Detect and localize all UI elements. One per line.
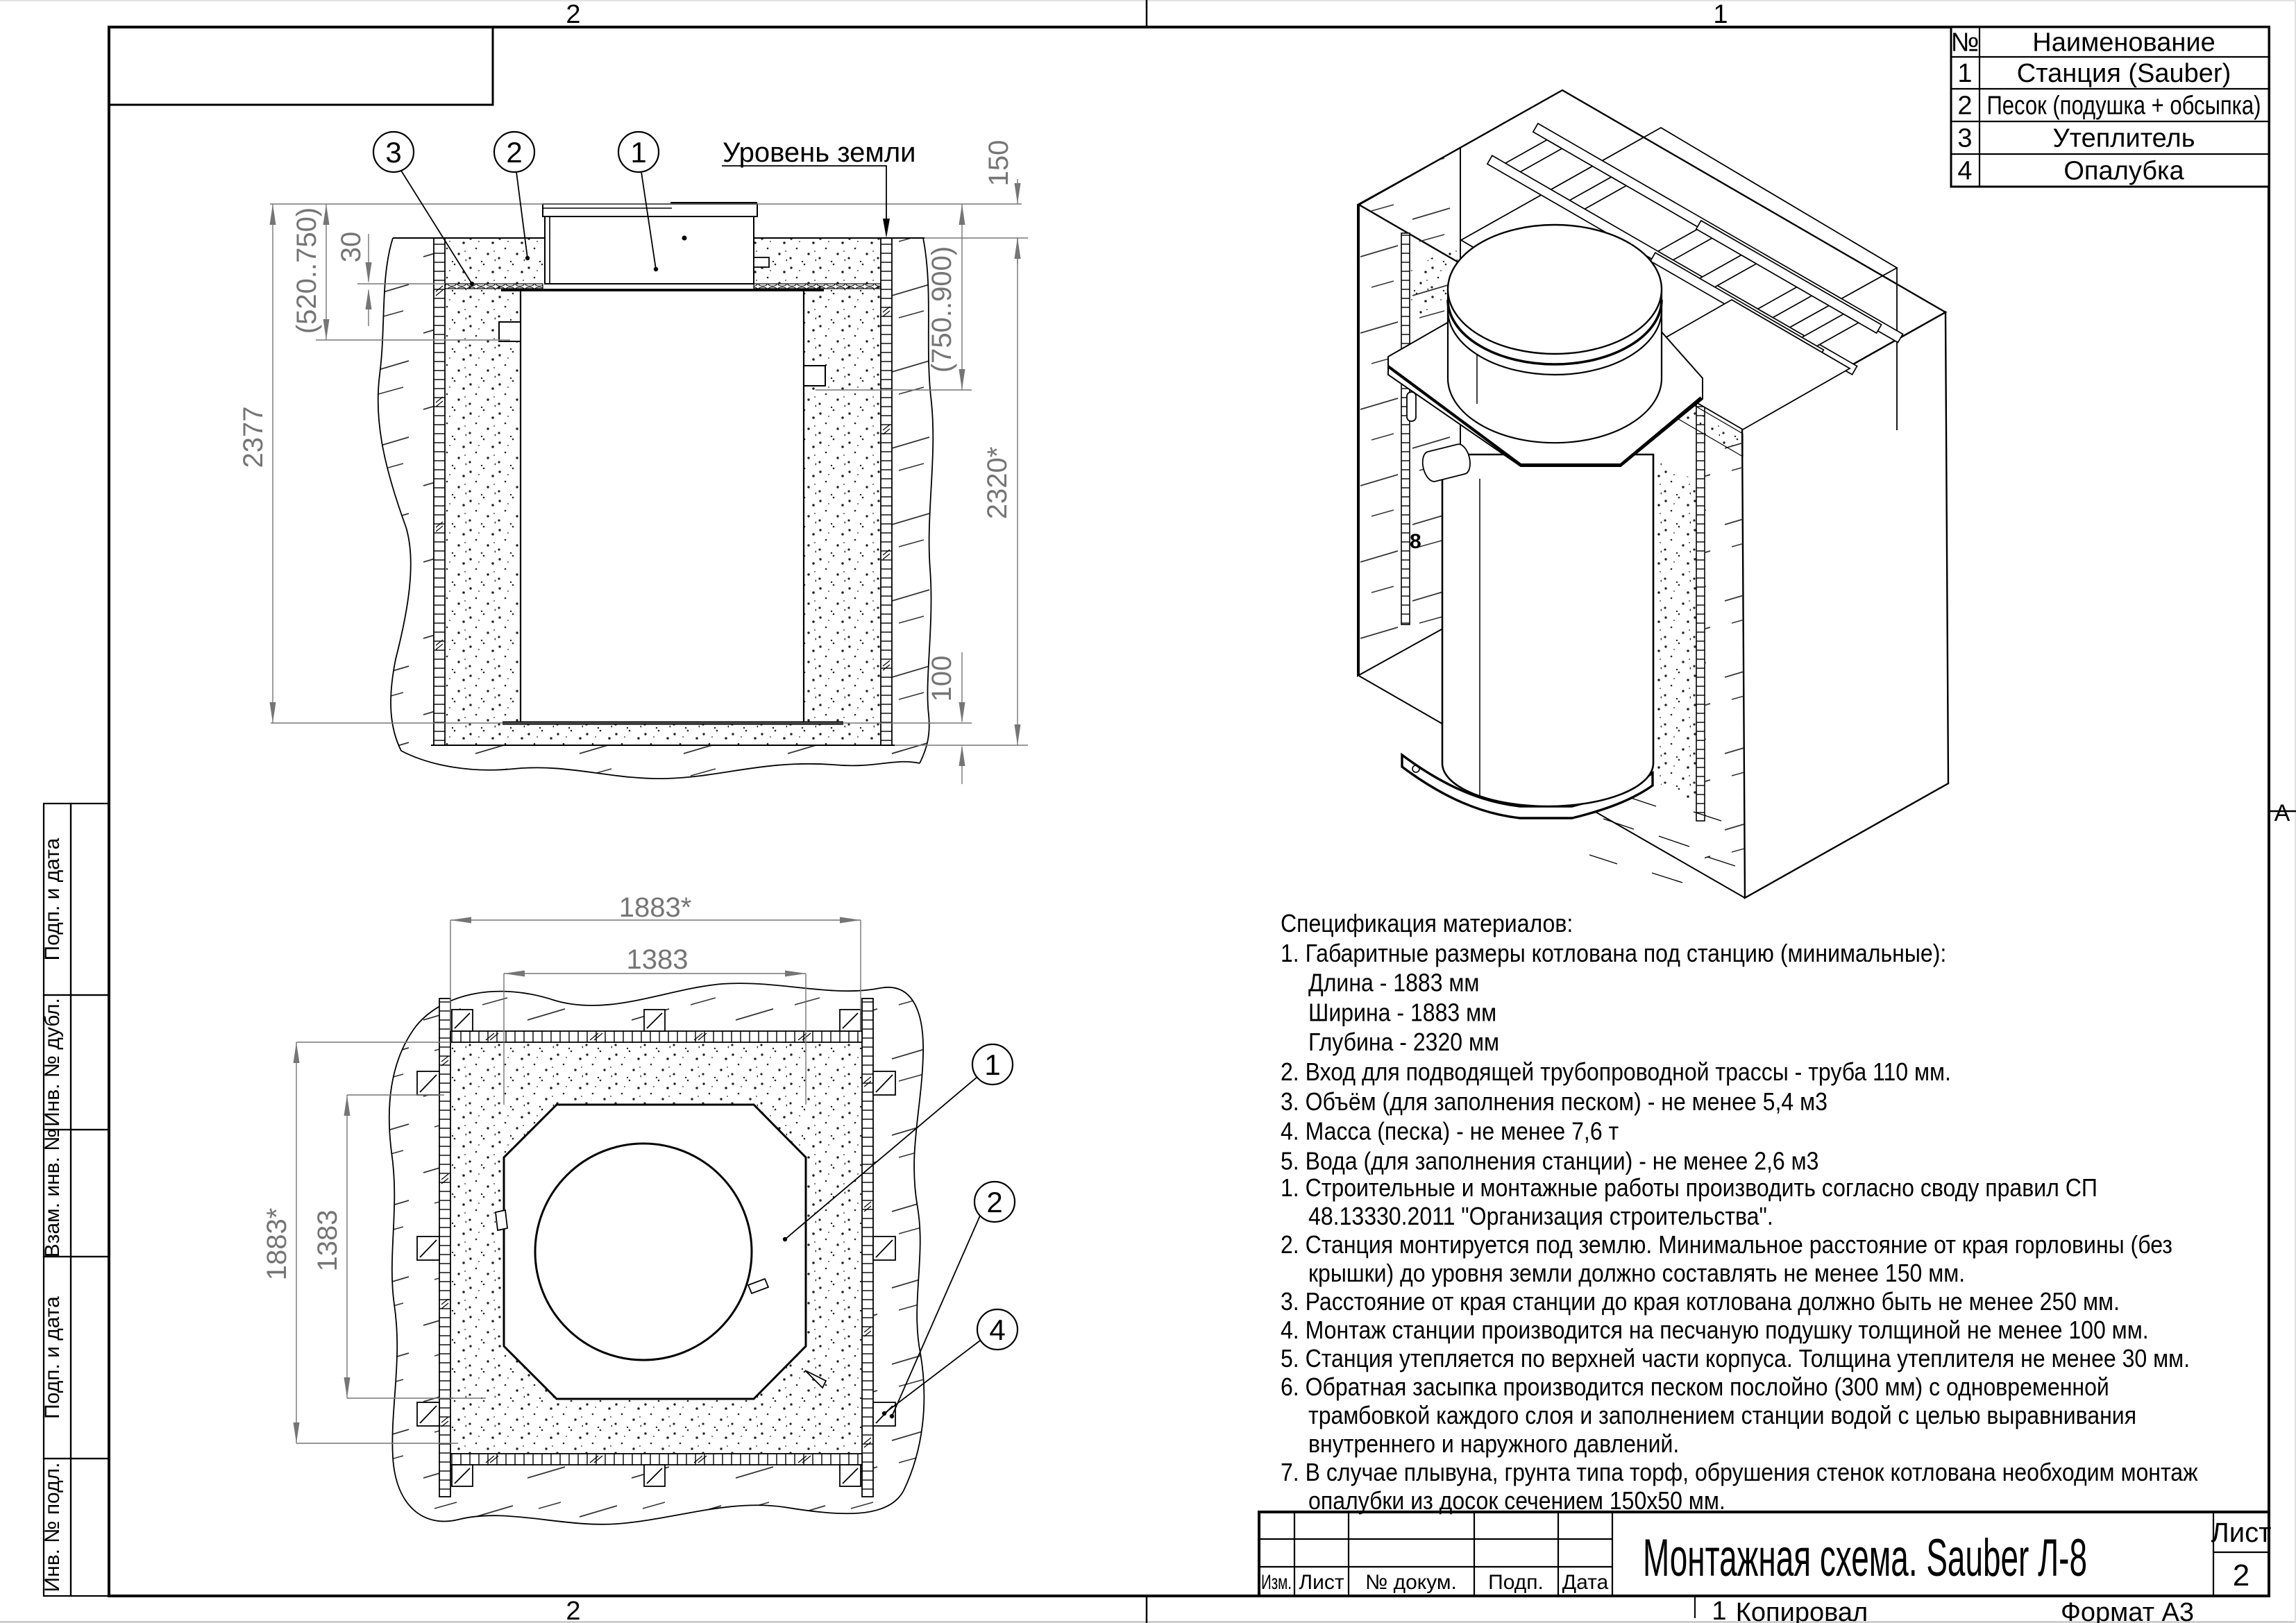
svg-text:Инв. № подл.: Инв. № подл. — [41, 1463, 64, 1592]
svg-text:2320*: 2320* — [982, 447, 1013, 520]
svg-text:4. Масса (песка) - не менее 7,: 4. Масса (песка) - не менее 7,6 т — [1281, 1118, 1619, 1146]
svg-text:2: 2 — [986, 1186, 1002, 1218]
svg-text:100: 100 — [927, 656, 957, 702]
svg-text:Дата: Дата — [1562, 1571, 1609, 1594]
svg-text:2: 2 — [506, 136, 522, 169]
svg-text:1883*: 1883* — [619, 892, 692, 923]
svg-text:2: 2 — [566, 0, 580, 29]
svg-text:2: 2 — [566, 1597, 580, 1623]
svg-text:Длина - 1883 мм: Длина - 1883 мм — [1308, 969, 1479, 997]
svg-text:Монтажная схема. Sauber Л-8: Монтажная схема. Sauber Л-8 — [1643, 1529, 2087, 1588]
svg-text:Станция (Sauber): Станция (Sauber) — [2017, 59, 2231, 88]
svg-text:2: 2 — [1957, 92, 1972, 121]
svg-text:Подп.: Подп. — [1488, 1571, 1544, 1594]
svg-text:Наименование: Наименование — [2032, 28, 2215, 58]
svg-text:Лист: Лист — [2211, 1518, 2272, 1548]
svg-text:6. Обратная засыпка производит: 6. Обратная засыпка производится песком … — [1281, 1373, 2109, 1401]
svg-text:А: А — [2274, 800, 2290, 826]
svg-text:4: 4 — [989, 1314, 1005, 1346]
svg-text:7. В случае плывуна, грунта ти: 7. В случае плывуна, грунта типа торф, о… — [1281, 1459, 2198, 1486]
svg-text:1: 1 — [1713, 0, 1728, 29]
svg-text:3. Объём (для заполнения песко: 3. Объём (для заполнения песком) - не ме… — [1281, 1088, 1827, 1116]
svg-text:150: 150 — [984, 140, 1014, 187]
svg-text:2. Вход для подводящей трубопр: 2. Вход для подводящей трубопроводной тр… — [1281, 1058, 1951, 1086]
svg-text:1383: 1383 — [627, 944, 689, 975]
svg-text:Лист: Лист — [1299, 1571, 1344, 1594]
svg-text:1: 1 — [1712, 1597, 1726, 1623]
svg-text:3. Расстояние от края станции: 3. Расстояние от края станции до края ко… — [1281, 1288, 2120, 1316]
svg-text:Копировал: Копировал — [1736, 1598, 1868, 1623]
svg-text:Глубина - 2320 мм: Глубина - 2320 мм — [1308, 1029, 1499, 1057]
svg-text:1. Строительные и монтажные ра: 1. Строительные и монтажные работы произ… — [1281, 1174, 2097, 1202]
svg-text:Песок (подушка + обсыпка): Песок (подушка + обсыпка) — [1987, 92, 2261, 121]
svg-text:3: 3 — [1957, 124, 1972, 153]
svg-text:Утеплитель: Утеплитель — [2052, 124, 2195, 153]
svg-text:1: 1 — [630, 136, 646, 169]
svg-text:1. Габаритные размеры котлован: 1. Габаритные размеры котлована под стан… — [1281, 940, 1946, 967]
svg-text:№ докум.: № докум. — [1365, 1571, 1457, 1594]
svg-text:1383: 1383 — [312, 1210, 343, 1272]
svg-text:2: 2 — [2233, 1558, 2249, 1592]
svg-text:(520..750): (520..750) — [292, 207, 322, 334]
svg-text:3: 3 — [385, 136, 401, 169]
svg-text:4: 4 — [1957, 157, 1972, 186]
svg-text:№: № — [1951, 28, 1980, 58]
svg-text:трамбовкой каждого слоя и запо: трамбовкой каждого слоя и заполнением ст… — [1308, 1402, 2136, 1429]
svg-text:Формат А3: Формат А3 — [2061, 1598, 2194, 1623]
svg-text:Подп. и дата: Подп. и дата — [41, 1296, 64, 1419]
svg-text:(750..900): (750..900) — [927, 246, 957, 373]
svg-text:Ширина - 1883 мм: Ширина - 1883 мм — [1308, 999, 1496, 1027]
svg-text:1883*: 1883* — [262, 1208, 292, 1281]
svg-text:опалубки из досок сечением 150: опалубки из досок сечением 150х50 мм. — [1308, 1487, 1725, 1515]
svg-text:8: 8 — [1410, 530, 1421, 553]
svg-text:Изм.: Изм. — [1261, 1571, 1292, 1594]
svg-text:крышки) до уровня земли должно: крышки) до уровня земли должно составлят… — [1308, 1259, 1965, 1287]
svg-text:Опалубка: Опалубка — [2063, 157, 2184, 186]
svg-text:5. Вода (для заполнения станци: 5. Вода (для заполнения станции) - не ме… — [1281, 1148, 1818, 1175]
svg-text:2377: 2377 — [238, 407, 269, 468]
svg-text:1: 1 — [1957, 59, 1972, 88]
svg-text:Уровень земли: Уровень земли — [723, 137, 916, 168]
svg-text:4. Монтаж станции производится: 4. Монтаж станции производится на песчан… — [1281, 1316, 2149, 1344]
svg-text:48.13330.2011 "Организация стр: 48.13330.2011 "Организация строительства… — [1308, 1203, 1773, 1230]
svg-text:1: 1 — [984, 1048, 1000, 1081]
svg-text:30: 30 — [336, 232, 366, 263]
svg-text:Подп. и дата: Подп. и дата — [41, 838, 64, 960]
svg-text:Спецификация материалов:: Спецификация материалов: — [1281, 910, 1573, 937]
svg-text:Инв. № дубл.: Инв. № дубл. — [41, 998, 64, 1127]
svg-text:внутреннего и наружного давлен: внутреннего и наружного давлений. — [1308, 1430, 1679, 1458]
svg-text:5. Станция утепляется по верхн: 5. Станция утепляется по верхней части к… — [1281, 1345, 2190, 1373]
svg-text:Взам. инв. №: Взам. инв. № — [41, 1129, 64, 1258]
svg-text:2. Станция монтируется под зем: 2. Станция монтируется под землю. Минима… — [1281, 1231, 2172, 1259]
